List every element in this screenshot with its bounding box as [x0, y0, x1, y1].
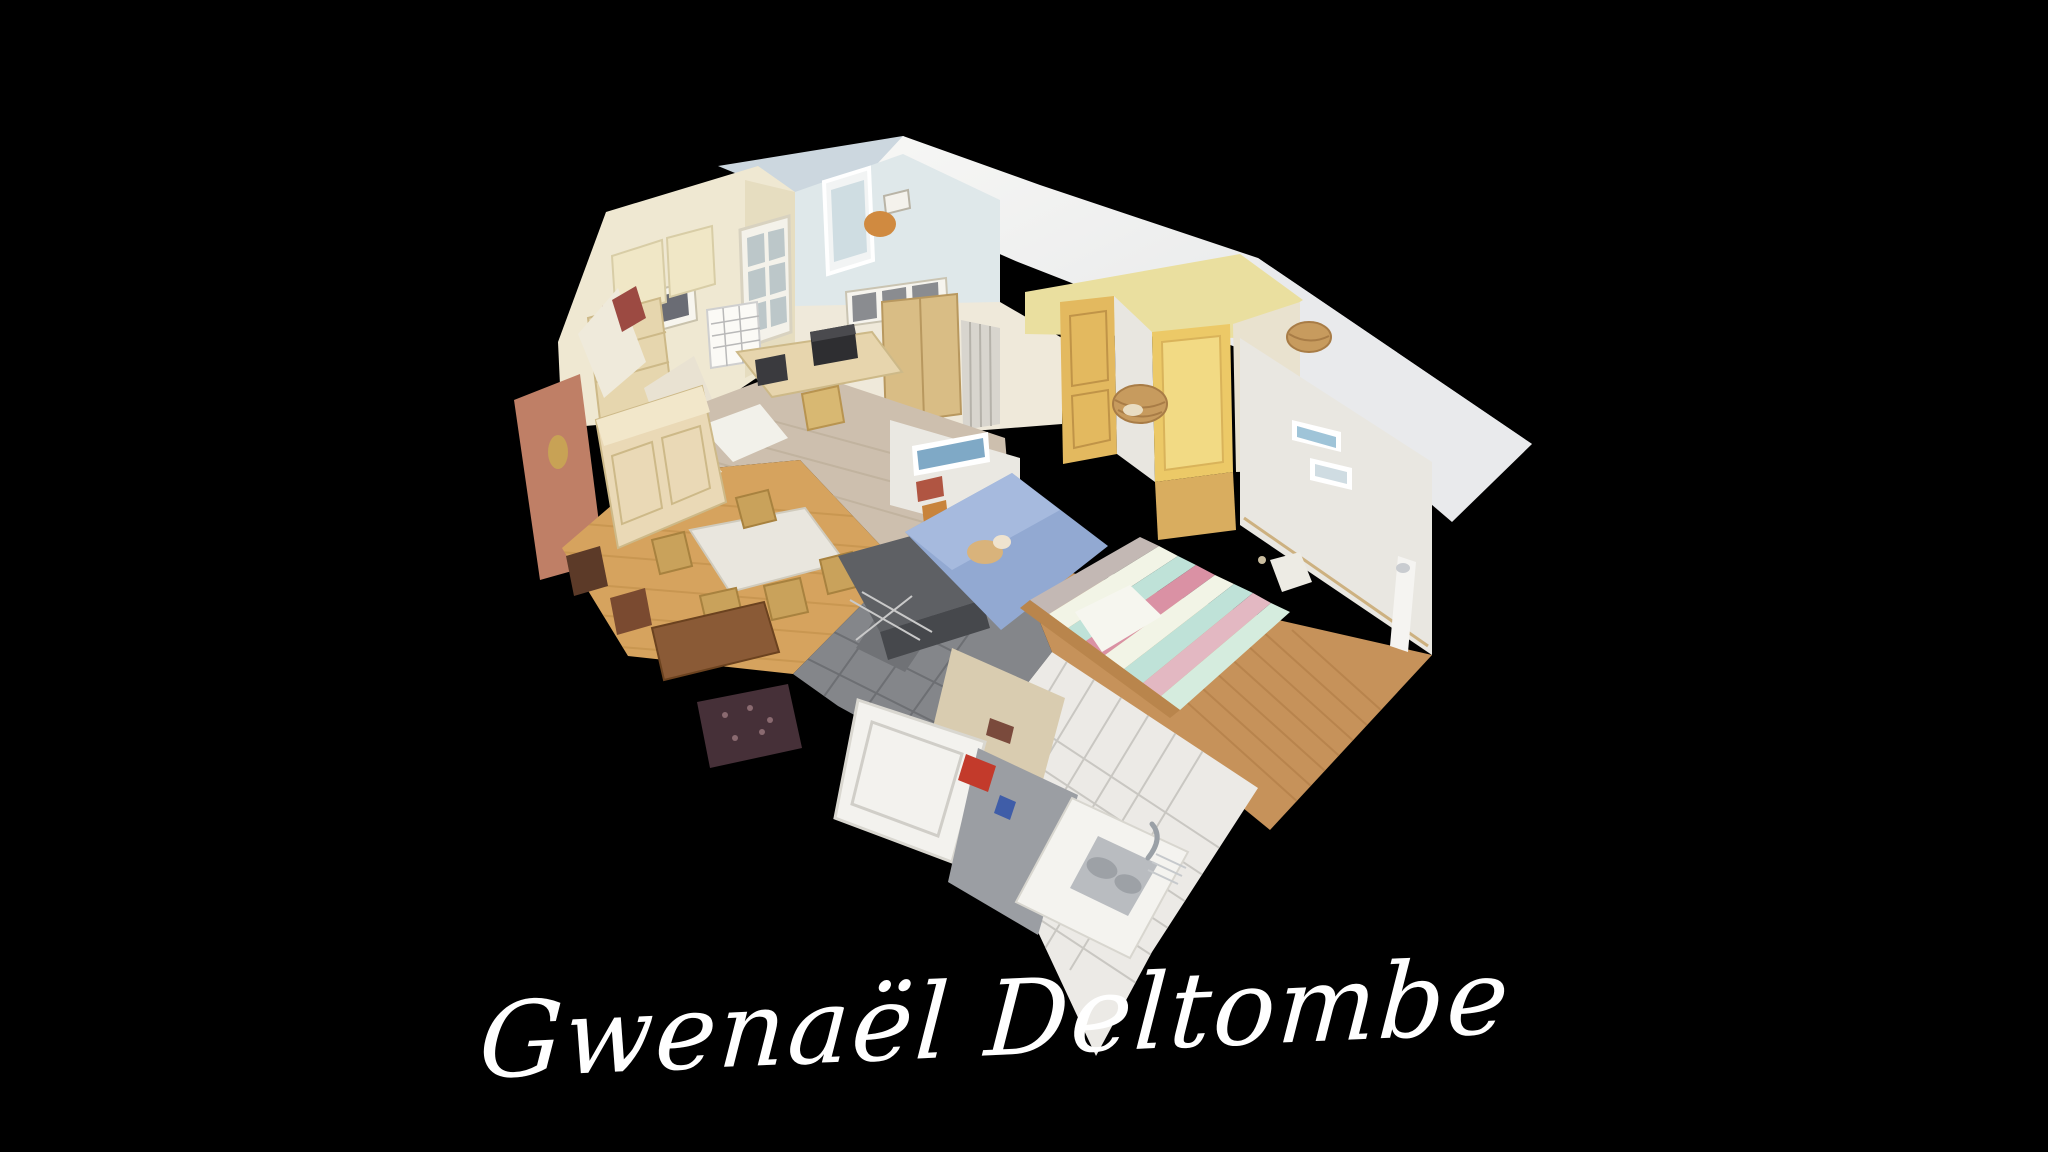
viewer-canvas[interactable]: Gwenaël Deltombe — [0, 0, 2048, 1152]
rattan-pendant-1 — [1113, 385, 1167, 423]
doorway-floor-glow — [1155, 472, 1236, 540]
shower-head — [1396, 563, 1410, 573]
bright-doorway-door — [1162, 336, 1223, 470]
dining-chair — [652, 532, 692, 574]
rattan-pendant-2 — [1287, 322, 1331, 352]
wall-outlet — [1258, 556, 1266, 564]
plush-toy-head — [993, 535, 1011, 549]
dark-rug — [697, 684, 802, 768]
dining-chair — [764, 578, 808, 620]
attic-room-left — [0, 0, 795, 428]
gold-sconce — [548, 435, 568, 469]
orange-wall-decor — [864, 211, 896, 237]
kitchen-cabinet-2 — [667, 226, 715, 297]
dining-chair — [736, 490, 776, 528]
office-chair — [802, 386, 844, 430]
office-window-glass — [831, 180, 867, 262]
